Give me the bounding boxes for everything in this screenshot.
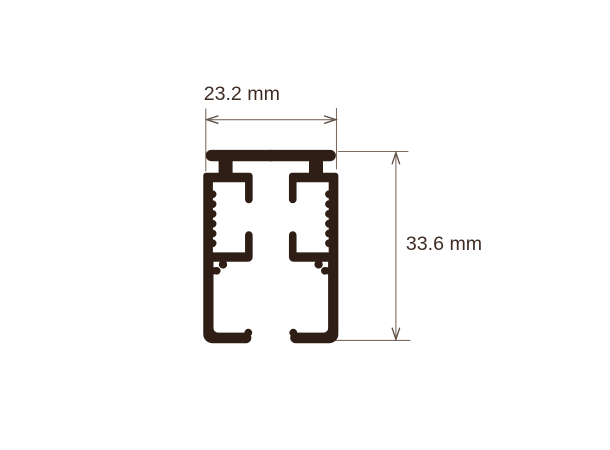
svg-text:33.6 mm: 33.6 mm — [406, 233, 482, 255]
svg-text:23.2 mm: 23.2 mm — [204, 83, 280, 105]
